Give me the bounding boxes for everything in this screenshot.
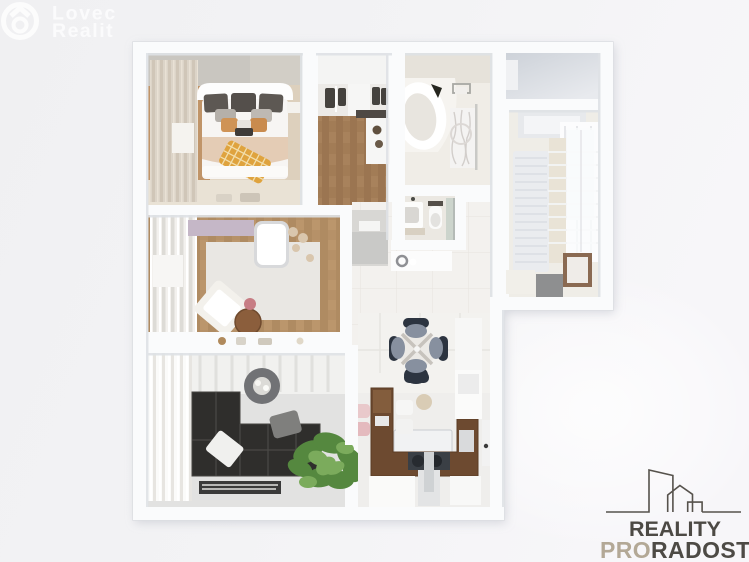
svg-text:PRORADOST: PRORADOST xyxy=(600,537,749,562)
svg-text:Realit: Realit xyxy=(52,20,114,42)
